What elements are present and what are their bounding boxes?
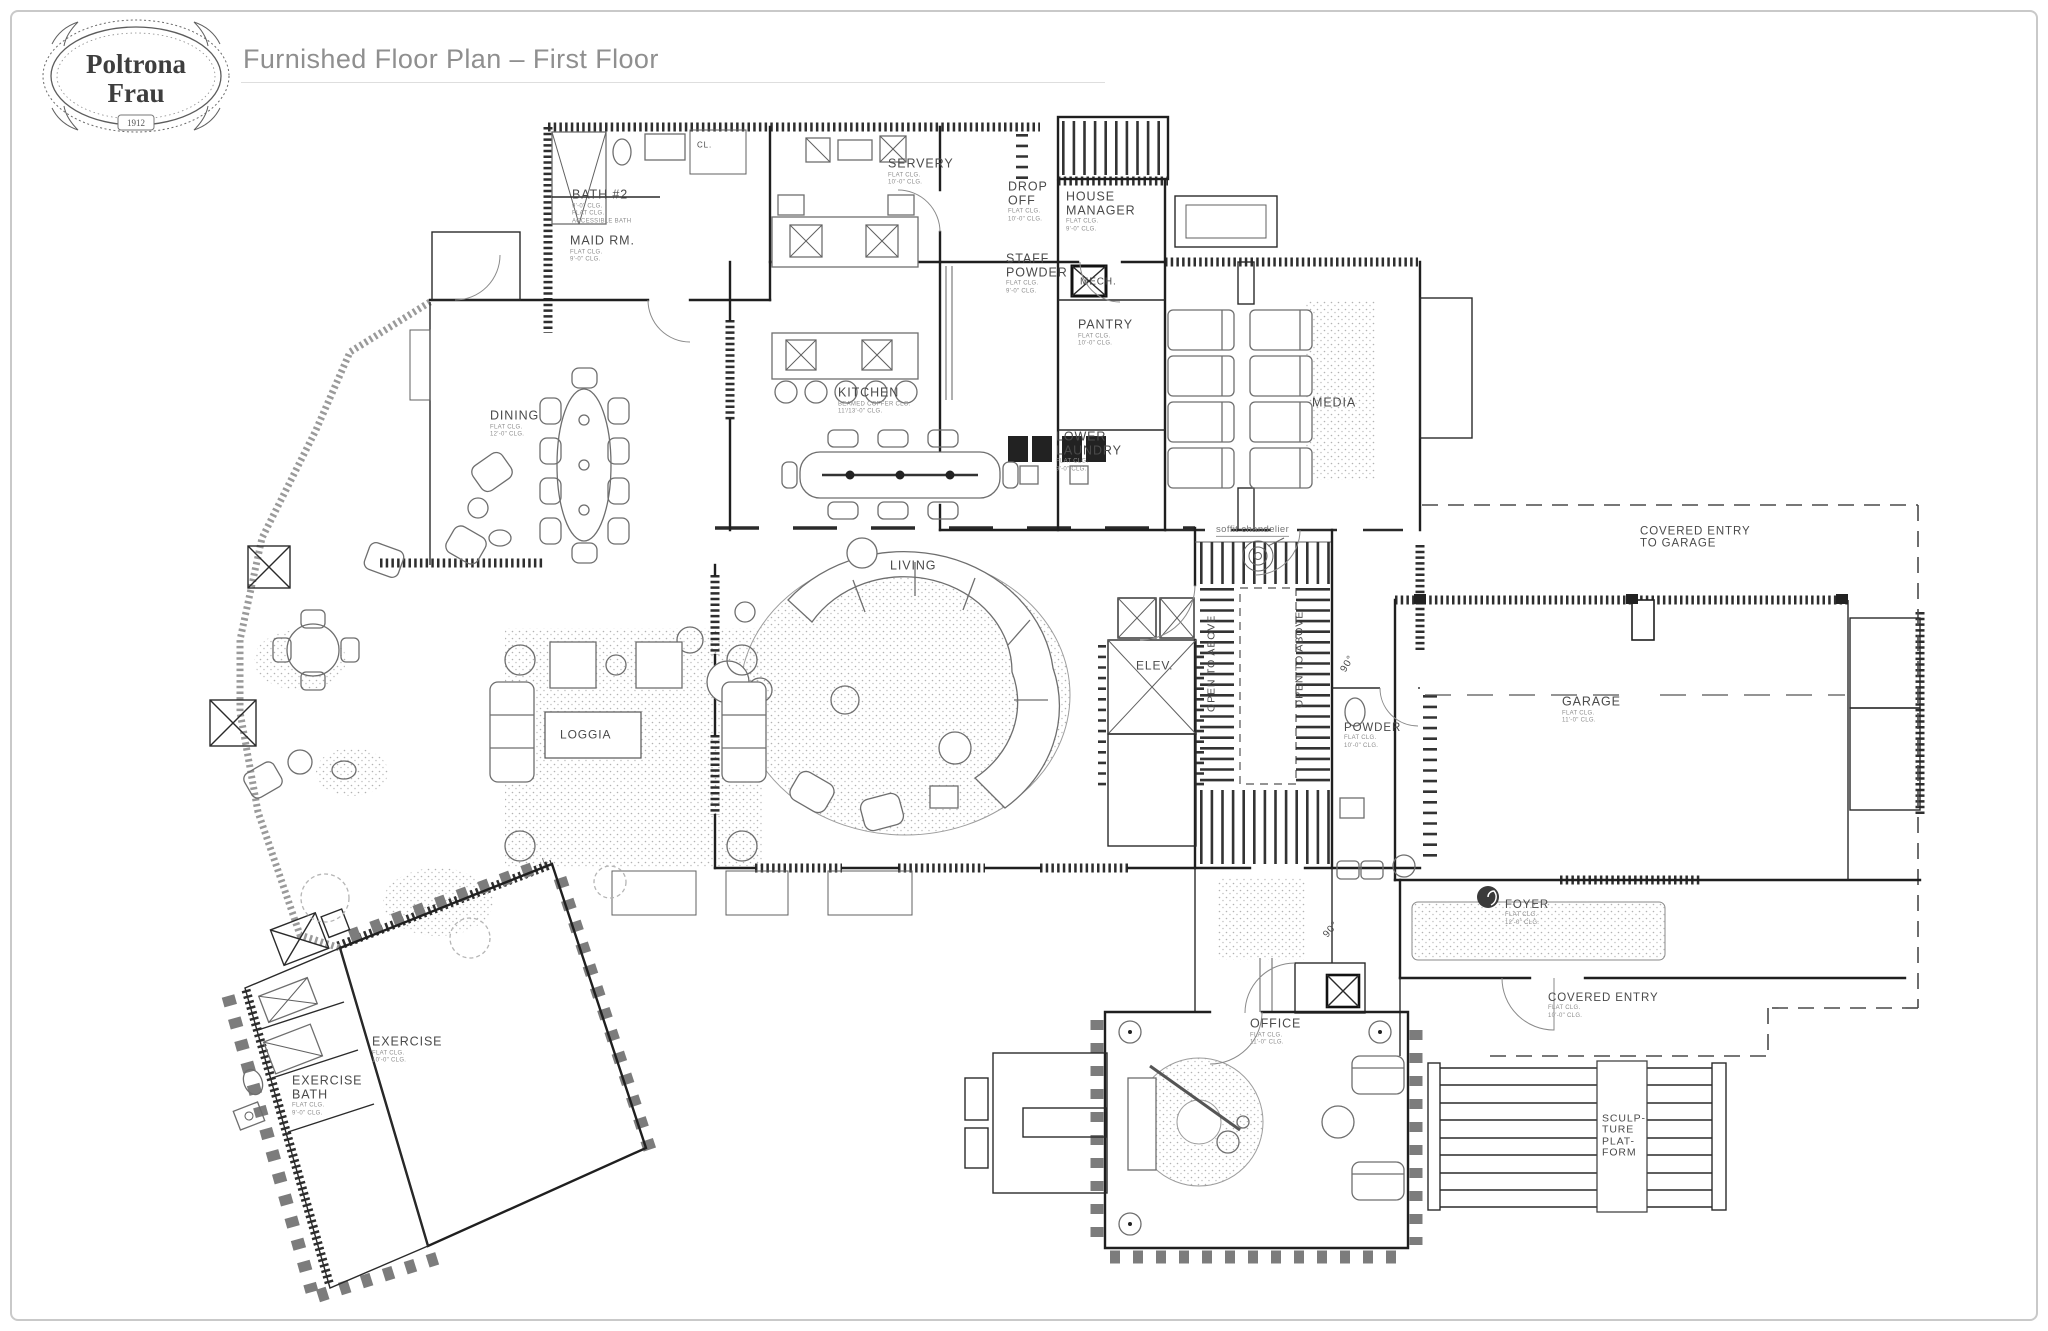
label-elev: ELEV.: [1136, 660, 1173, 673]
label-foyer: FOYERFLAT CLG.12'-0" CLG.: [1505, 899, 1549, 927]
label-maid-rm: MAID RM.FLAT CLG.9'-0" CLG.: [570, 234, 635, 263]
label-dining: DININGFLAT CLG.12'-0" CLG.: [490, 409, 539, 438]
label-covered-entry: COVERED ENTRYFLAT CLG.10'-0" CLG.: [1548, 992, 1659, 1020]
label-pantry: PANTRYFLAT CLG.10'-0" CLG.: [1078, 318, 1133, 347]
floor-plan: BATH #29'-0" CLG.FLAT CLG.ACCESSIBLE BAT…: [0, 0, 2048, 1331]
label-mech: MECH.: [1080, 278, 1117, 289]
label-open-to-above-left: OPEN TO ABOVE: [1206, 615, 1217, 712]
label-office: OFFICEFLAT CLG.11'-0" CLG.: [1250, 1017, 1301, 1046]
elevator: [1102, 598, 1200, 846]
label-staff-powder: STAFFPOWDERFLAT CLG.9'-0" CLG.: [1006, 253, 1068, 296]
label-bath-2: BATH #29'-0" CLG.FLAT CLG.ACCESSIBLE BAT…: [572, 188, 631, 225]
label-drop-off: DROPOFFFLAT CLG.10'-0" CLG.: [1008, 181, 1048, 224]
soffit-chandelier-symbol: [1243, 538, 1284, 571]
label-closet-cl: CL.: [697, 142, 712, 151]
label-lower-laundry: LOWERLAUNDRYFLAT CLG.9'-0" CLG.: [1056, 431, 1122, 474]
label-kitchen: KITCHENBEAMED COFFER CLG.11'/13'-0" CLG.: [838, 386, 911, 415]
label-garage: GARAGEFLAT CLG.11'-0" CLG.: [1562, 695, 1621, 724]
label-loggia: LOGGIA: [560, 729, 611, 742]
label-house-manager: HOUSEMANAGERFLAT CLG.9'-0" CLG.: [1066, 191, 1136, 234]
label-exercise: EXERCISEFLAT CLG.10'-0" CLG.: [372, 1035, 442, 1064]
label-powder: POWDERFLAT CLG.10'-0" CLG.: [1344, 722, 1401, 750]
label-media: MEDIA: [1312, 396, 1356, 410]
sculpture-platform-slats: [1428, 1061, 1726, 1212]
label-open-to-above-right: OPEN TO ABOVE: [1294, 611, 1305, 708]
label-soffit-chandelier: soffit chandelier: [1216, 525, 1289, 537]
label-exercise-bath: EXERCISEBATHFLAT CLG.9'-0" CLG.: [292, 1075, 362, 1118]
label-sculpture-platform: SCULP-TUREPLAT-FORM: [1602, 1113, 1646, 1158]
label-living: LIVING: [890, 559, 936, 573]
label-covered-entry-to-garage: COVERED ENTRYTO GARAGE: [1640, 526, 1751, 551]
label-servery: SERVERYFLAT CLG.10'-0" CLG.: [888, 157, 954, 186]
